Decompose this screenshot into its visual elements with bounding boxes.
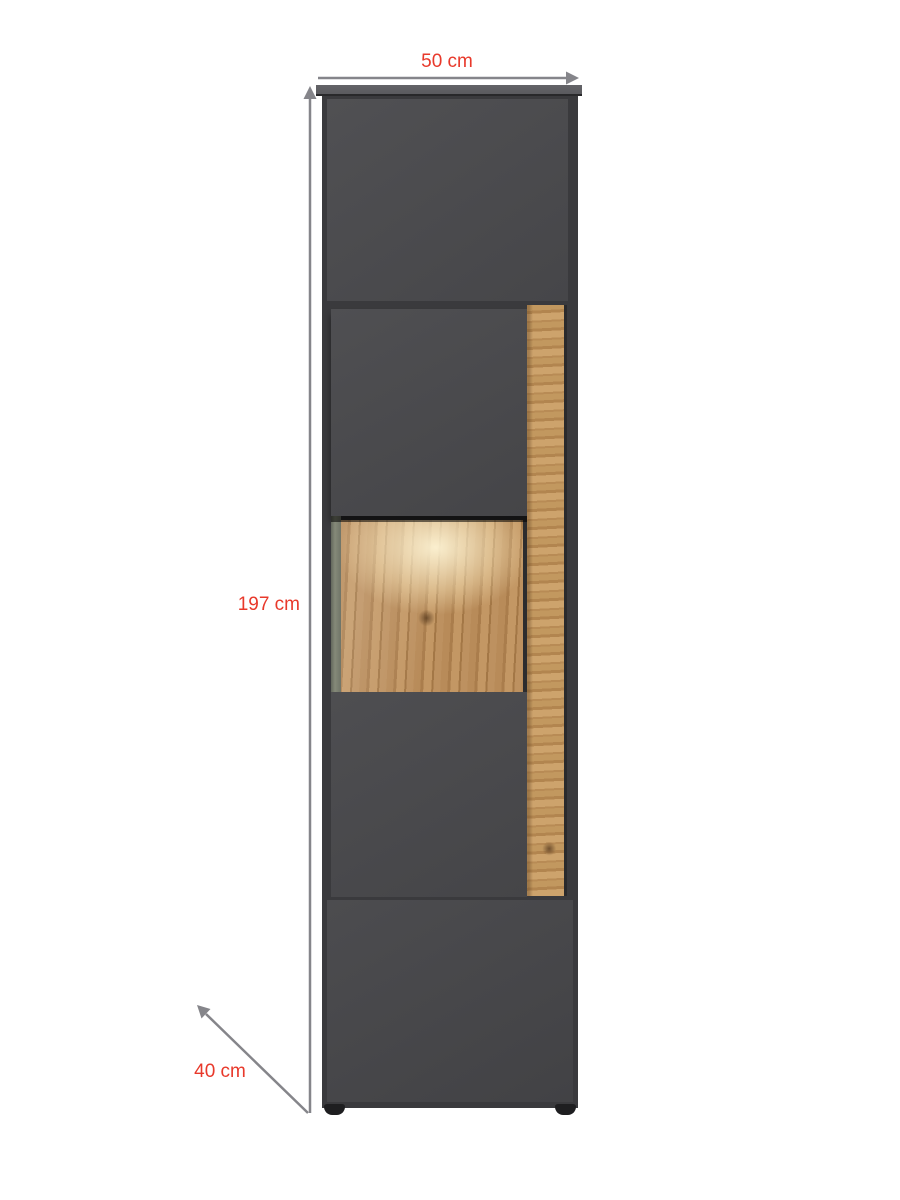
- oak-accent-strip: [527, 305, 567, 896]
- cabinet-second-door: [331, 309, 527, 516]
- cabinet-body: [322, 96, 578, 1108]
- height-dimension-label: 197 cm: [222, 595, 300, 614]
- cabinet-bottom-panel: [327, 900, 573, 1102]
- depth-dimension-label: 40 cm: [180, 1062, 260, 1081]
- oak-back-panel-with-light: [341, 520, 523, 692]
- compartment-shadow: [331, 516, 527, 522]
- cabinet-upper-door: [327, 99, 568, 301]
- height-dimension-arrow-icon: [304, 86, 317, 1113]
- cabinet-third-door: [331, 692, 527, 897]
- width-dimension-label: 50 cm: [407, 52, 487, 71]
- product-dimension-diagram: 50 cm 197 cm 40 cm: [0, 0, 900, 1200]
- cabinet-foot-right: [555, 1104, 576, 1115]
- cabinet-foot-left: [324, 1104, 345, 1115]
- cabinet-top-board: [316, 85, 582, 96]
- depth-dimension-arrow-icon: [197, 1005, 308, 1113]
- cabinet-lighted-display-compartment: [331, 516, 527, 692]
- glass-door-edge: [331, 516, 341, 692]
- width-dimension-arrow-icon: [318, 72, 579, 85]
